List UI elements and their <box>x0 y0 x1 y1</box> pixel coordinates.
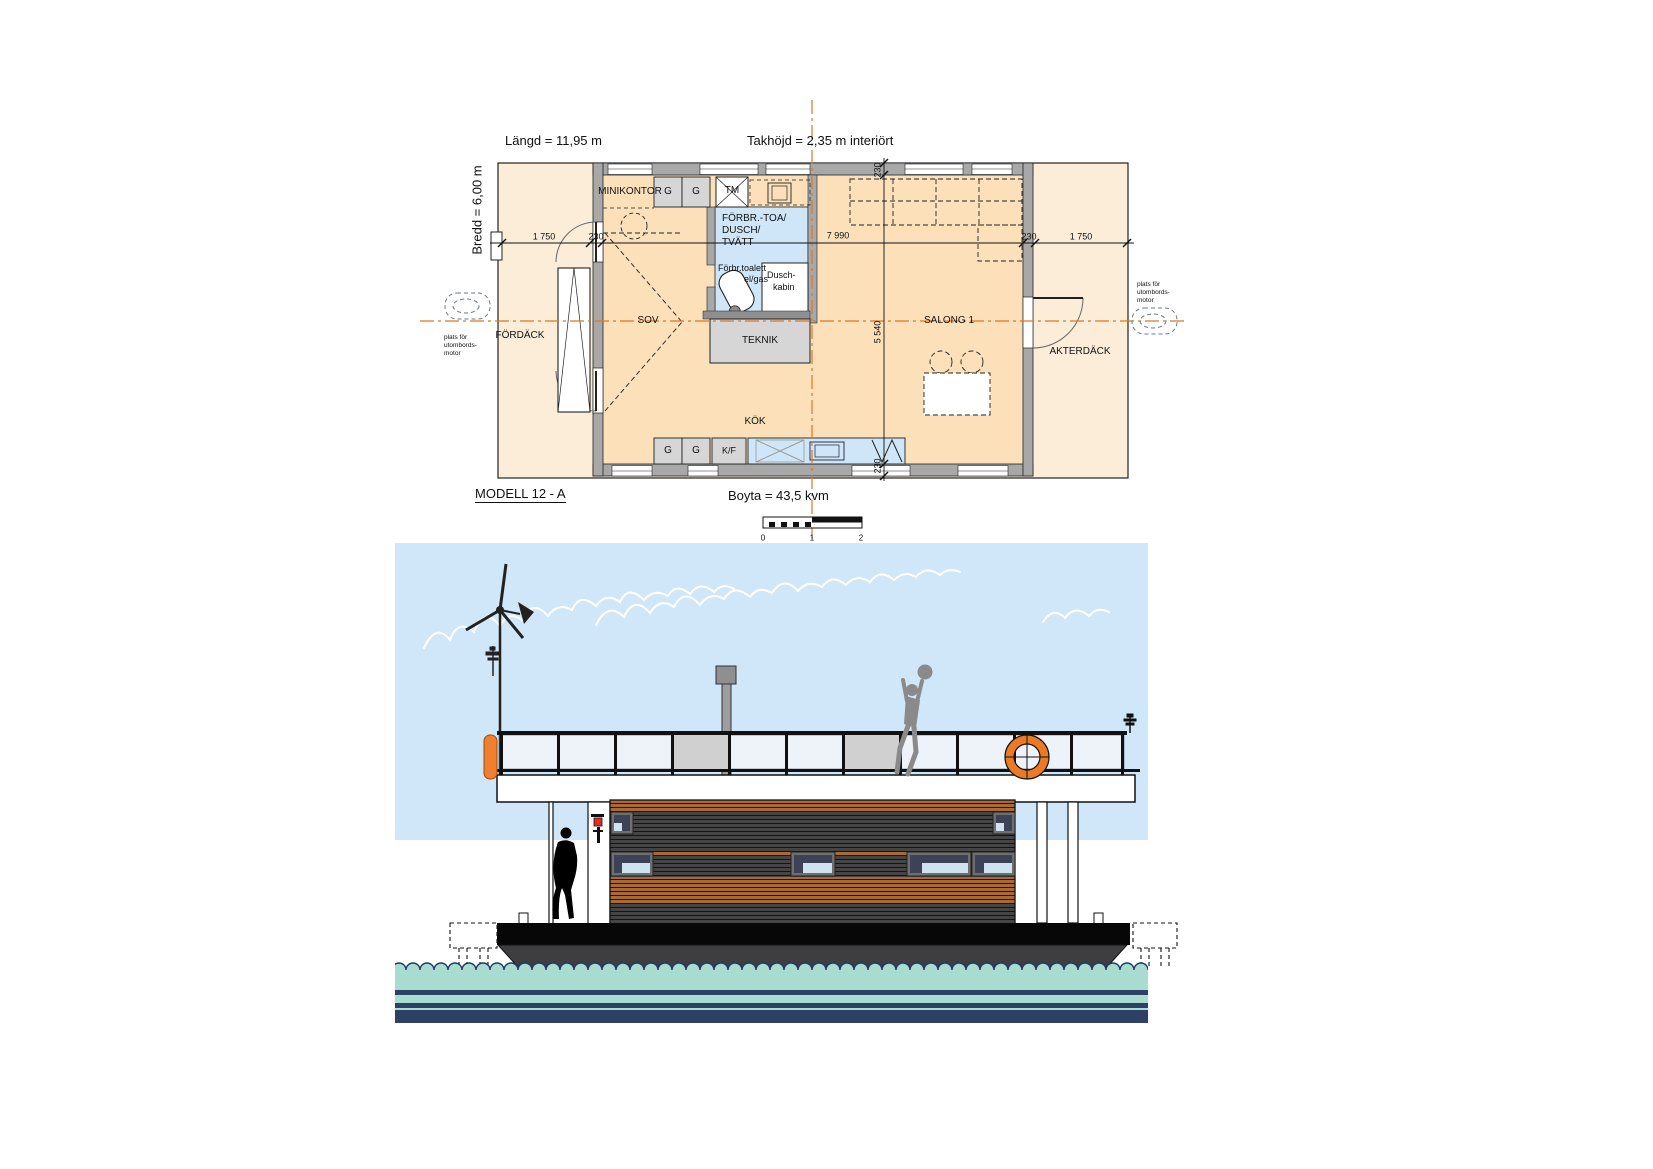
outboard-motor-symbol-left <box>445 293 490 319</box>
window-mid-4 <box>972 852 1015 876</box>
motor-note-left-2: utombords- <box>444 342 477 350</box>
scale-tick-1: 1 <box>810 533 814 542</box>
room-label-bathroom-3: TVÄTT <box>722 237 754 249</box>
window-mid-1 <box>611 852 653 876</box>
person-standing <box>552 828 577 920</box>
room-label-minikontor: MINIKONTOR <box>598 186 662 198</box>
dim-v-2: 5 540 <box>873 321 884 344</box>
motor-note-right-3: motor <box>1137 297 1154 305</box>
drawing-canvas <box>0 0 1653 1169</box>
floor-plan <box>420 100 1185 540</box>
dim-h-5: 1 750 <box>1070 232 1093 243</box>
room-label-bathroom-1: FÖRBR.-TOA/ <box>722 213 786 225</box>
room-label-akterdack: AKTERDÄCK <box>1049 346 1110 358</box>
gangway-stub <box>491 232 502 260</box>
motor-note-left-1: plats för <box>444 334 467 342</box>
toilet-note-2: el/gas <box>744 274 768 285</box>
outboard-motor-elevation-left <box>450 923 497 967</box>
dim-h-3: 7 990 <box>827 231 850 242</box>
lifebuoy <box>1005 735 1049 779</box>
window-mid-2 <box>791 852 835 876</box>
cabinet-label-g1: G <box>664 186 672 198</box>
width-label: Bredd = 6,00 m <box>469 165 484 254</box>
ceiling-height-label: Takhöjd = 2,35 m interiört <box>747 133 893 148</box>
cabinet-label-kf: K/F <box>722 446 736 457</box>
cabinet-label-kg1: G <box>664 445 672 457</box>
window-small-left <box>611 812 633 834</box>
water <box>395 961 1148 1023</box>
motor-note-left-3: motor <box>444 350 461 358</box>
toilet-note-1: Förbr.toalett <box>718 263 766 274</box>
elevation-view <box>395 543 1177 1023</box>
fender <box>484 735 497 779</box>
scale-tick-2: 2 <box>859 533 863 542</box>
motor-note-right-2: utombords- <box>1137 289 1170 297</box>
scale-tick-0: 0 <box>761 533 765 542</box>
shower-label-2: kabin <box>773 282 795 293</box>
ball <box>918 665 933 680</box>
motor-note-right-1: plats för <box>1137 281 1160 289</box>
window-small-right <box>993 812 1015 834</box>
shower-label-1: Dusch- <box>767 270 796 281</box>
cabinet-label-g2: G <box>692 186 700 198</box>
dim-h-1: 1 750 <box>533 232 556 243</box>
tech-room-wall <box>703 311 810 319</box>
wardrobes-top <box>654 177 710 207</box>
model-label: MODELL 12 - A <box>475 486 566 503</box>
scale-bar <box>763 517 862 528</box>
dim-v-3: 230 <box>873 458 884 473</box>
foredeck-locker <box>558 268 590 412</box>
room-label-teknik: TEKNIK <box>742 335 778 347</box>
roof-deck-slab <box>497 775 1135 802</box>
cabinet-label-kg2: G <box>692 445 700 457</box>
room-label-fordack: FÖRDÄCK <box>496 330 545 342</box>
railing-top-rail <box>497 731 1127 735</box>
dim-v-1: 230 <box>873 162 884 177</box>
window-mid-3 <box>907 852 971 876</box>
houseboat-drawing-sheet: Längd = 11,95 m Takhöjd = 2,35 m interiö… <box>0 0 1653 1169</box>
railing-panel-gray-1 <box>671 735 728 769</box>
room-label-salong: SALONG 1 <box>924 315 974 327</box>
room-label-kok: KÖK <box>744 416 765 428</box>
outboard-motor-elevation-right <box>1133 923 1177 967</box>
room-label-bathroom-2: DUSCH/ <box>722 225 760 237</box>
room-label-sov: SOV <box>637 315 658 327</box>
railing-panel-gray-2 <box>842 735 899 769</box>
cabinet-label-tm: TM <box>725 185 739 197</box>
length-label: Längd = 11,95 m <box>505 133 602 148</box>
dim-h-4: 230 <box>1021 232 1036 243</box>
area-label: Boyta = 43,5 kvm <box>728 488 829 503</box>
dim-h-2: 230 <box>588 232 603 243</box>
